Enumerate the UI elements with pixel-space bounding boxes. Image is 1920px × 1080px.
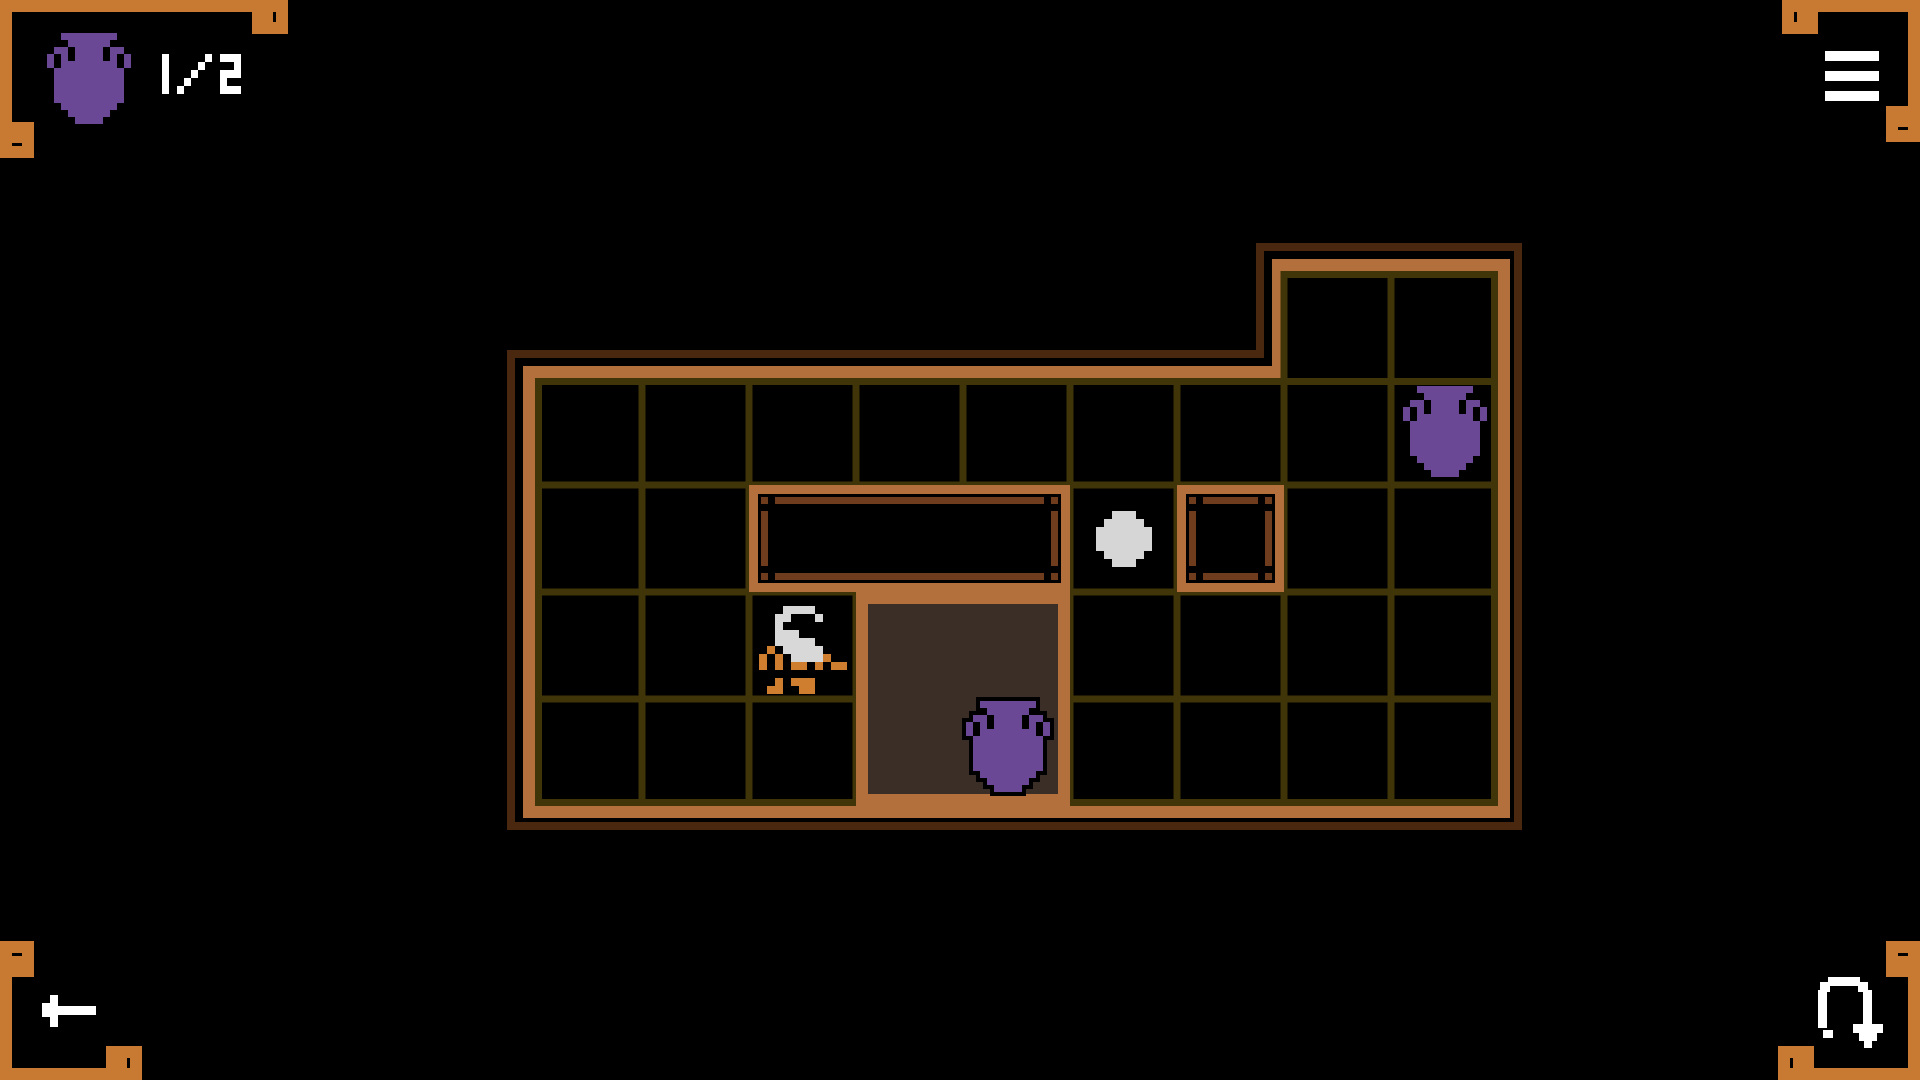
undo-button[interactable] (1818, 977, 1883, 1048)
wall-small (1177, 485, 1284, 592)
walls (749, 485, 1284, 592)
vase-counter-text (162, 54, 241, 94)
menu-icon (1825, 51, 1879, 101)
vase-counter (47, 33, 241, 124)
game-scene (0, 0, 1920, 1080)
back-arrow-icon (42, 995, 96, 1027)
back-button[interactable] (42, 995, 96, 1027)
amphora-icon (47, 33, 131, 124)
corner-decoration-top-left (0, 0, 288, 158)
menu-button[interactable] (1825, 51, 1879, 101)
corner-decoration-bottom-right (1778, 941, 1920, 1080)
game-screen (0, 0, 1920, 1080)
wall-long (749, 485, 1070, 592)
undo-icon (1818, 977, 1883, 1048)
boulder (1096, 511, 1152, 567)
game-board (511, 247, 1518, 826)
